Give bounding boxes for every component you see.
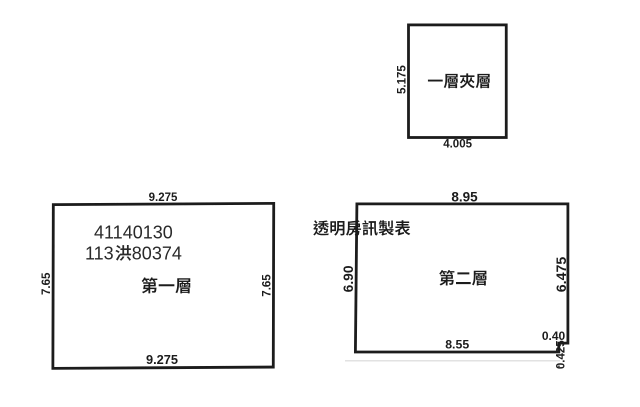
svg-text:41140130: 41140130	[94, 223, 173, 243]
svg-text:6.90: 6.90	[341, 265, 356, 292]
svg-text:8.95: 8.95	[451, 190, 478, 205]
svg-text:7.65: 7.65	[41, 272, 53, 295]
svg-text:5.175: 5.175	[396, 65, 408, 94]
svg-text:8.55: 8.55	[445, 337, 469, 351]
svg-text:9.275: 9.275	[146, 352, 178, 367]
svg-text:113: 113	[85, 243, 114, 263]
svg-text:0.425: 0.425	[555, 340, 567, 369]
svg-text:9.275: 9.275	[149, 192, 178, 204]
svg-text:80374: 80374	[132, 243, 182, 263]
svg-text:4.005: 4.005	[443, 139, 472, 151]
svg-text:7.65: 7.65	[262, 274, 274, 297]
svg-text:6.475: 6.475	[554, 257, 570, 293]
